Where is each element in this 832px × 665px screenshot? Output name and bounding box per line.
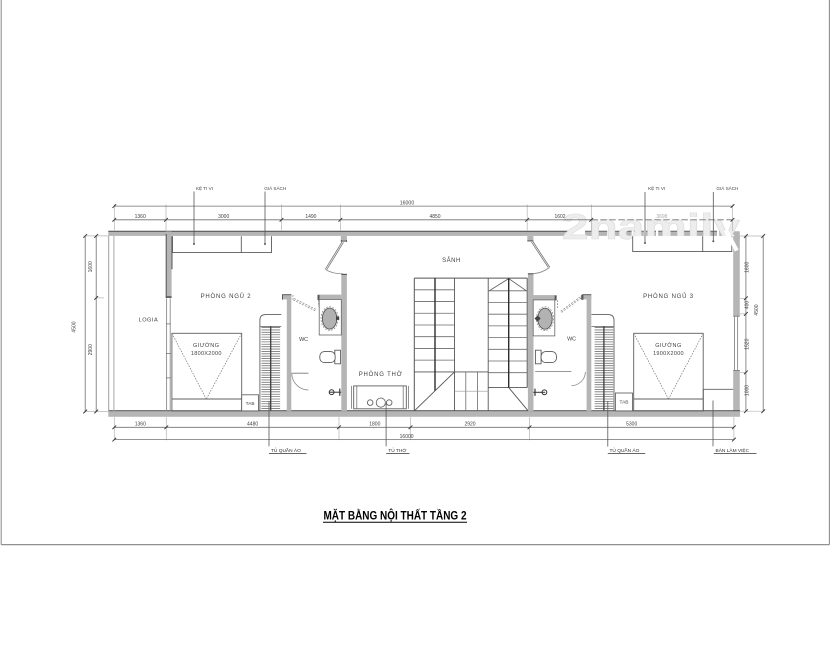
svg-text:KỆ TI VI: KỆ TI VI: [196, 184, 213, 191]
svg-text:4500: 4500: [754, 304, 760, 315]
svg-text:1800: 1800: [369, 422, 380, 428]
svg-text:5300: 5300: [626, 422, 637, 428]
svg-text:PHÒNG THỜ: PHÒNG THỜ: [359, 371, 403, 378]
svg-text:3698: 3698: [656, 214, 667, 220]
svg-text:3000: 3000: [218, 214, 229, 220]
svg-text:1600: 1600: [88, 261, 94, 272]
svg-text:MẶT BẰNG NỘI THẤT TẦNG 2: MẶT BẰNG NỘI THẤT TẦNG 2: [324, 508, 467, 523]
svg-text:1800X2000: 1800X2000: [191, 351, 222, 357]
svg-text:GIƯỜNG: GIƯỜNG: [193, 342, 219, 349]
svg-text:GIÁ SÁCH: GIÁ SÁCH: [264, 185, 286, 191]
svg-text:1900X2000: 1900X2000: [653, 351, 684, 357]
svg-text:1360: 1360: [135, 214, 146, 220]
svg-text:TỦ THỜ: TỦ THỜ: [388, 447, 406, 454]
svg-text:16000: 16000: [400, 434, 414, 440]
svg-text:GIƯỜNG: GIƯỜNG: [655, 342, 681, 349]
svg-text:TAB: TAB: [620, 399, 629, 405]
svg-text:LOGIA: LOGIA: [139, 317, 159, 323]
svg-text:1600: 1600: [745, 262, 751, 273]
svg-text:SẢNH: SẢNH: [442, 257, 461, 264]
svg-text:PHÒNG NGỦ 3: PHÒNG NGỦ 3: [643, 293, 694, 300]
svg-text:1000: 1000: [745, 385, 751, 396]
svg-text:2920: 2920: [464, 422, 475, 428]
svg-text:1490: 1490: [305, 214, 316, 220]
svg-text:TỦ QUẦN ÁO: TỦ QUẦN ÁO: [271, 447, 301, 454]
svg-text:1602: 1602: [554, 214, 565, 220]
svg-text:GIÁ SÁCH: GIÁ SÁCH: [716, 185, 738, 191]
svg-text:PHÒNG NGỦ 2: PHÒNG NGỦ 2: [201, 293, 252, 300]
svg-text:WC: WC: [299, 337, 308, 343]
svg-text:1360: 1360: [135, 422, 146, 428]
svg-text:TAB: TAB: [246, 401, 255, 407]
svg-text:4480: 4480: [247, 422, 258, 428]
svg-text:16000: 16000: [400, 201, 415, 207]
svg-text:WC: WC: [567, 337, 576, 343]
svg-text:2900: 2900: [88, 344, 94, 355]
svg-text:4850: 4850: [429, 214, 440, 220]
svg-text:KỆ TI VI: KỆ TI VI: [648, 184, 665, 191]
svg-text:4500: 4500: [71, 321, 77, 332]
svg-text:1520: 1520: [745, 338, 751, 349]
svg-text:TỦ QUẦN ÁO: TỦ QUẦN ÁO: [610, 447, 640, 454]
svg-text:400: 400: [745, 301, 751, 310]
